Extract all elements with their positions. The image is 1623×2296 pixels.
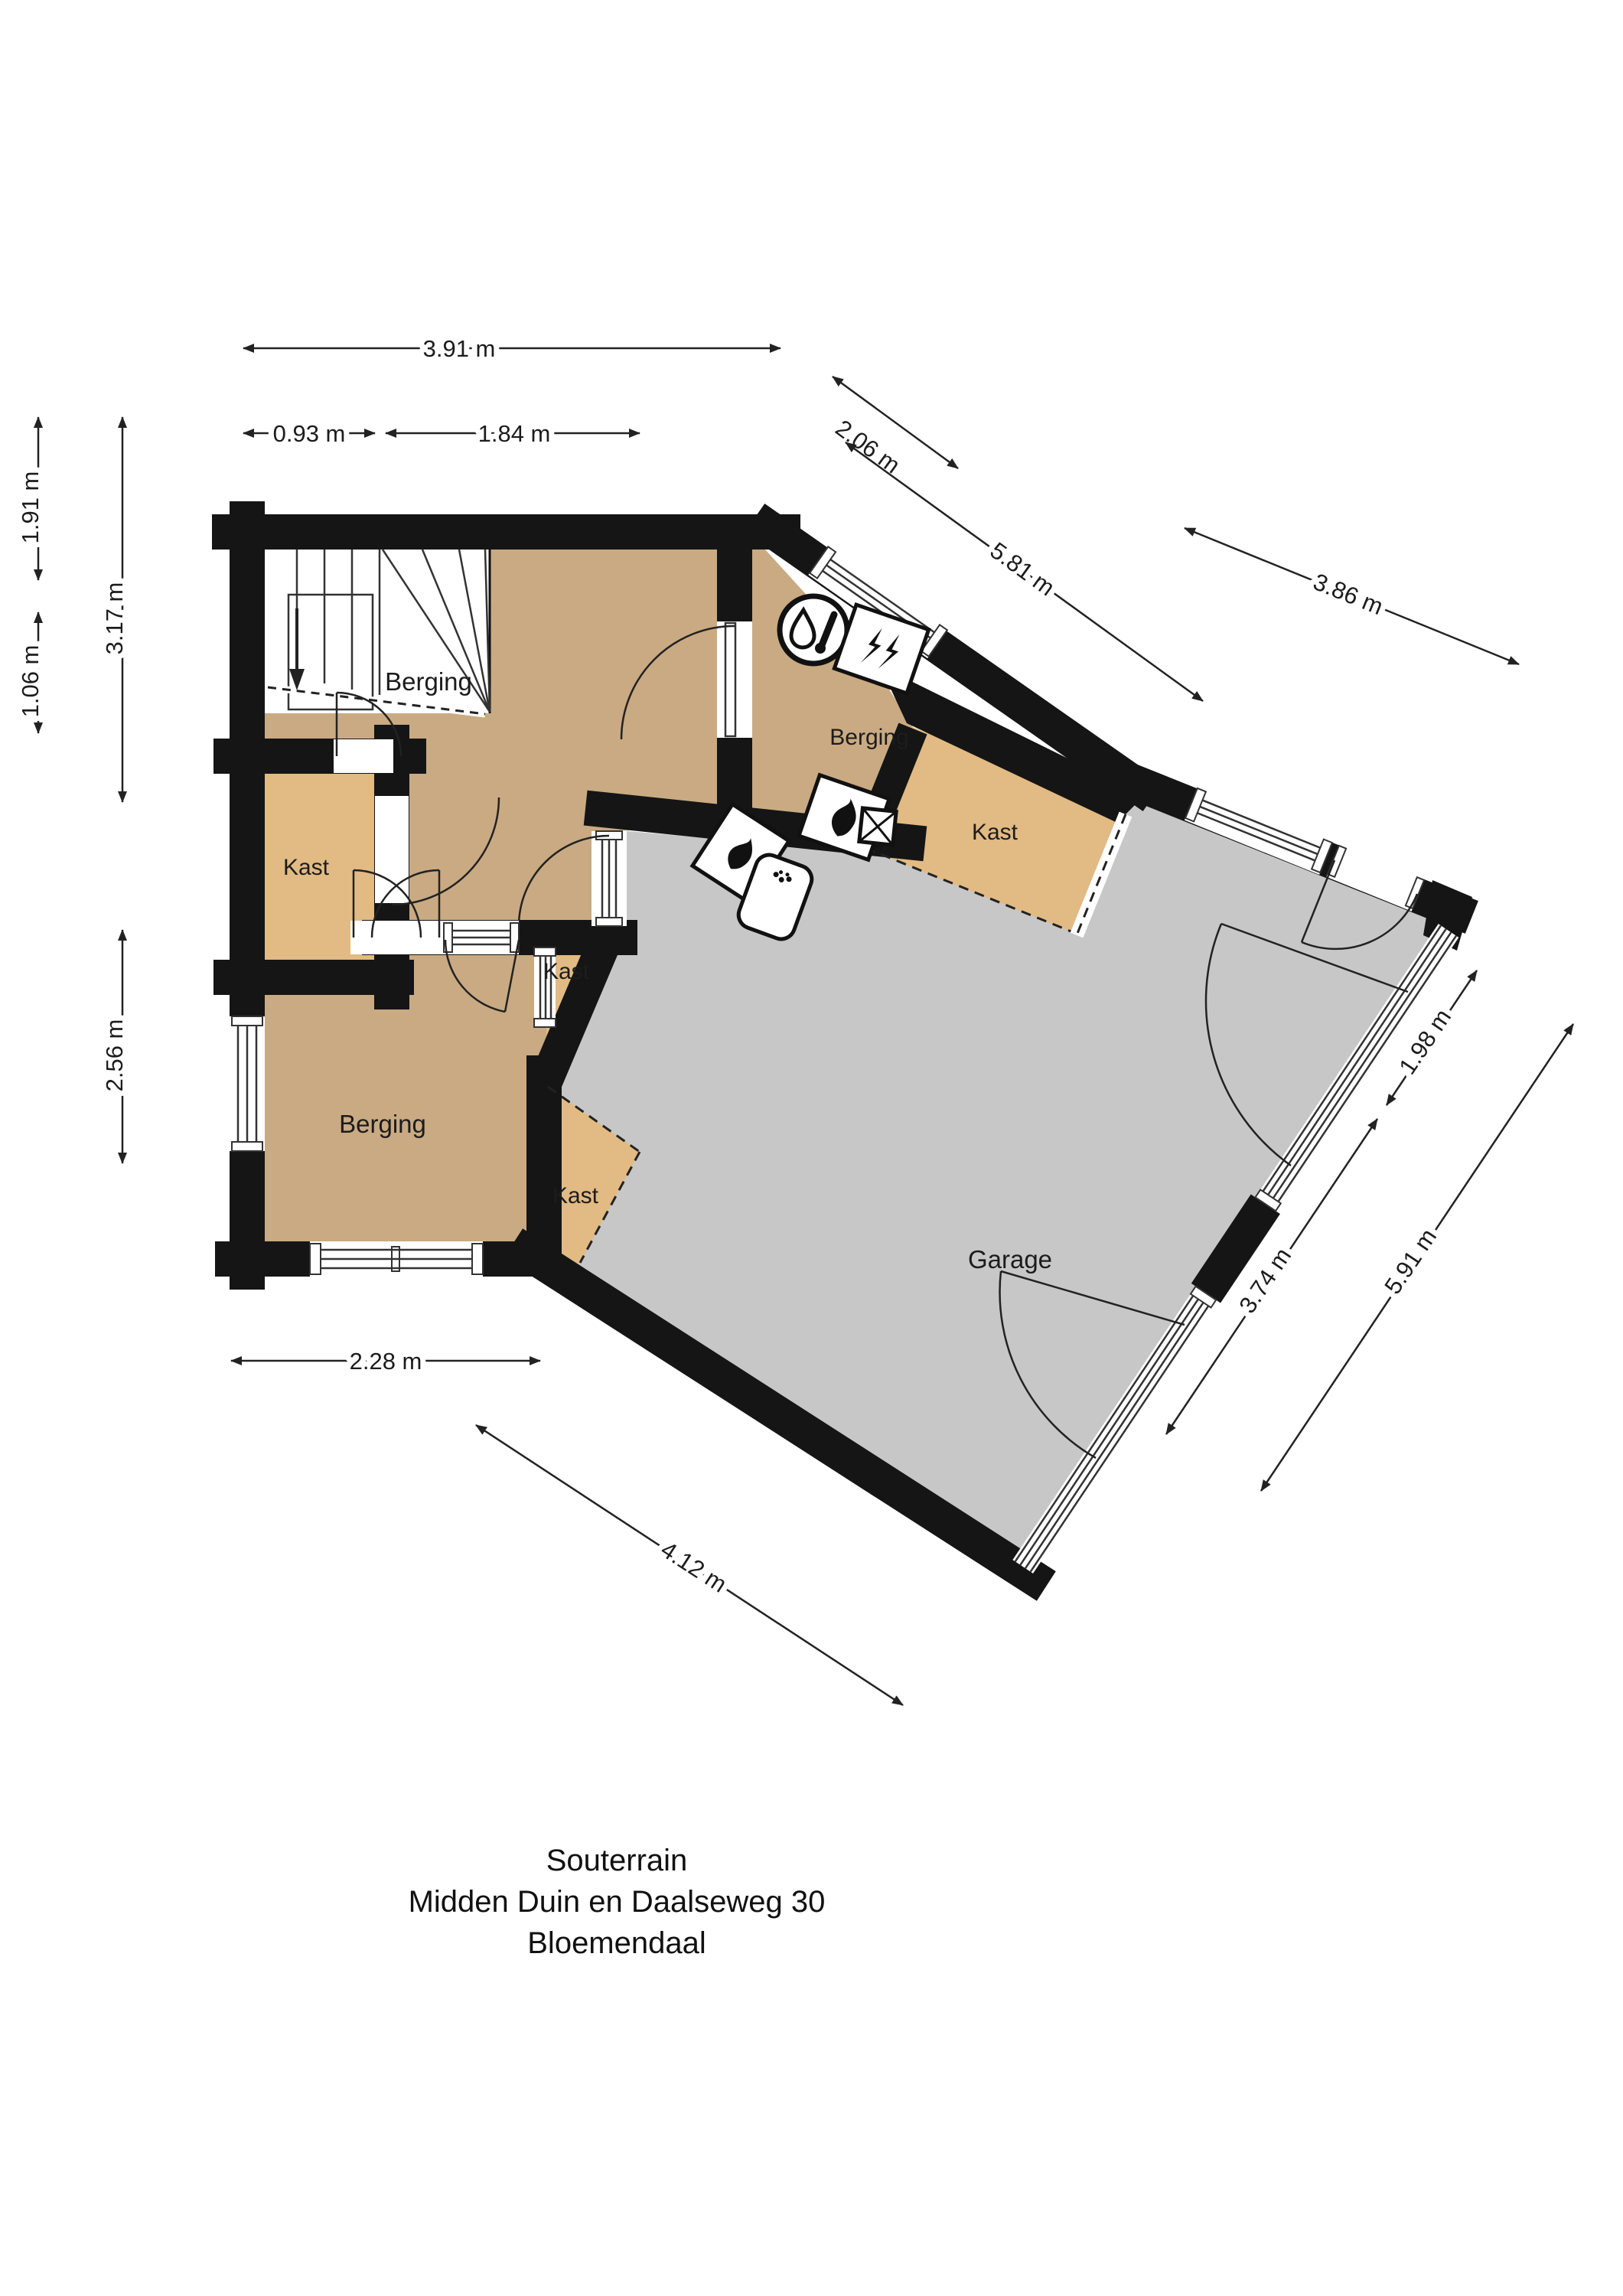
dim-top-total: 3.91 m [423,335,496,362]
dim-ne-short: 2.06 m [831,414,905,478]
room-label-kast-1: Kast [283,855,330,880]
dim-ne-long: 3.86 m [1309,568,1387,620]
dim-left-a: 1.91 m [17,471,44,544]
dim-ne-mid: 5.81 m [986,536,1060,601]
title-address: Midden Duin en Daalseweg 30 [409,1885,826,1919]
dim-left-c: 1.06 m [17,645,44,718]
floorplan-page: Berging Berging Berging Garage Kast Kast… [0,0,1623,2296]
dim-top-b: 1.84 m [478,420,551,447]
room-label-berging-2: Berging [829,725,908,750]
window-left-wall [230,1016,265,1151]
floor-garage [536,793,1449,1567]
room-label-garage: Garage [968,1245,1052,1274]
room-label-berging-3: Berging [339,1110,426,1138]
title-floor: Souterrain [546,1844,688,1877]
room-label-kast-2: Kast [543,959,590,984]
boiler-thermometer-icon [780,596,847,664]
dim-top-a: 0.93 m [273,420,346,447]
dim-bottom-a: 2.28 m [350,1348,422,1375]
floorplan-svg: Berging Berging Berging Garage Kast Kast… [0,0,1623,2296]
room-label-kast-3: Kast [972,820,1018,845]
dim-left-d: 2.56 m [101,1019,128,1092]
room-label-kast-4: Kast [552,1183,599,1208]
window-bottom-wall [310,1241,483,1277]
dim-bottom-diag: 4.12 m [656,1536,732,1598]
shaft-cross-icon [859,808,896,845]
room-label-berging-1: Berging [385,667,472,696]
title-city: Bloemendaal [527,1926,706,1960]
dim-left-b: 3.17 m [101,582,128,655]
dim-right-c: 5.91 m [1379,1224,1442,1299]
